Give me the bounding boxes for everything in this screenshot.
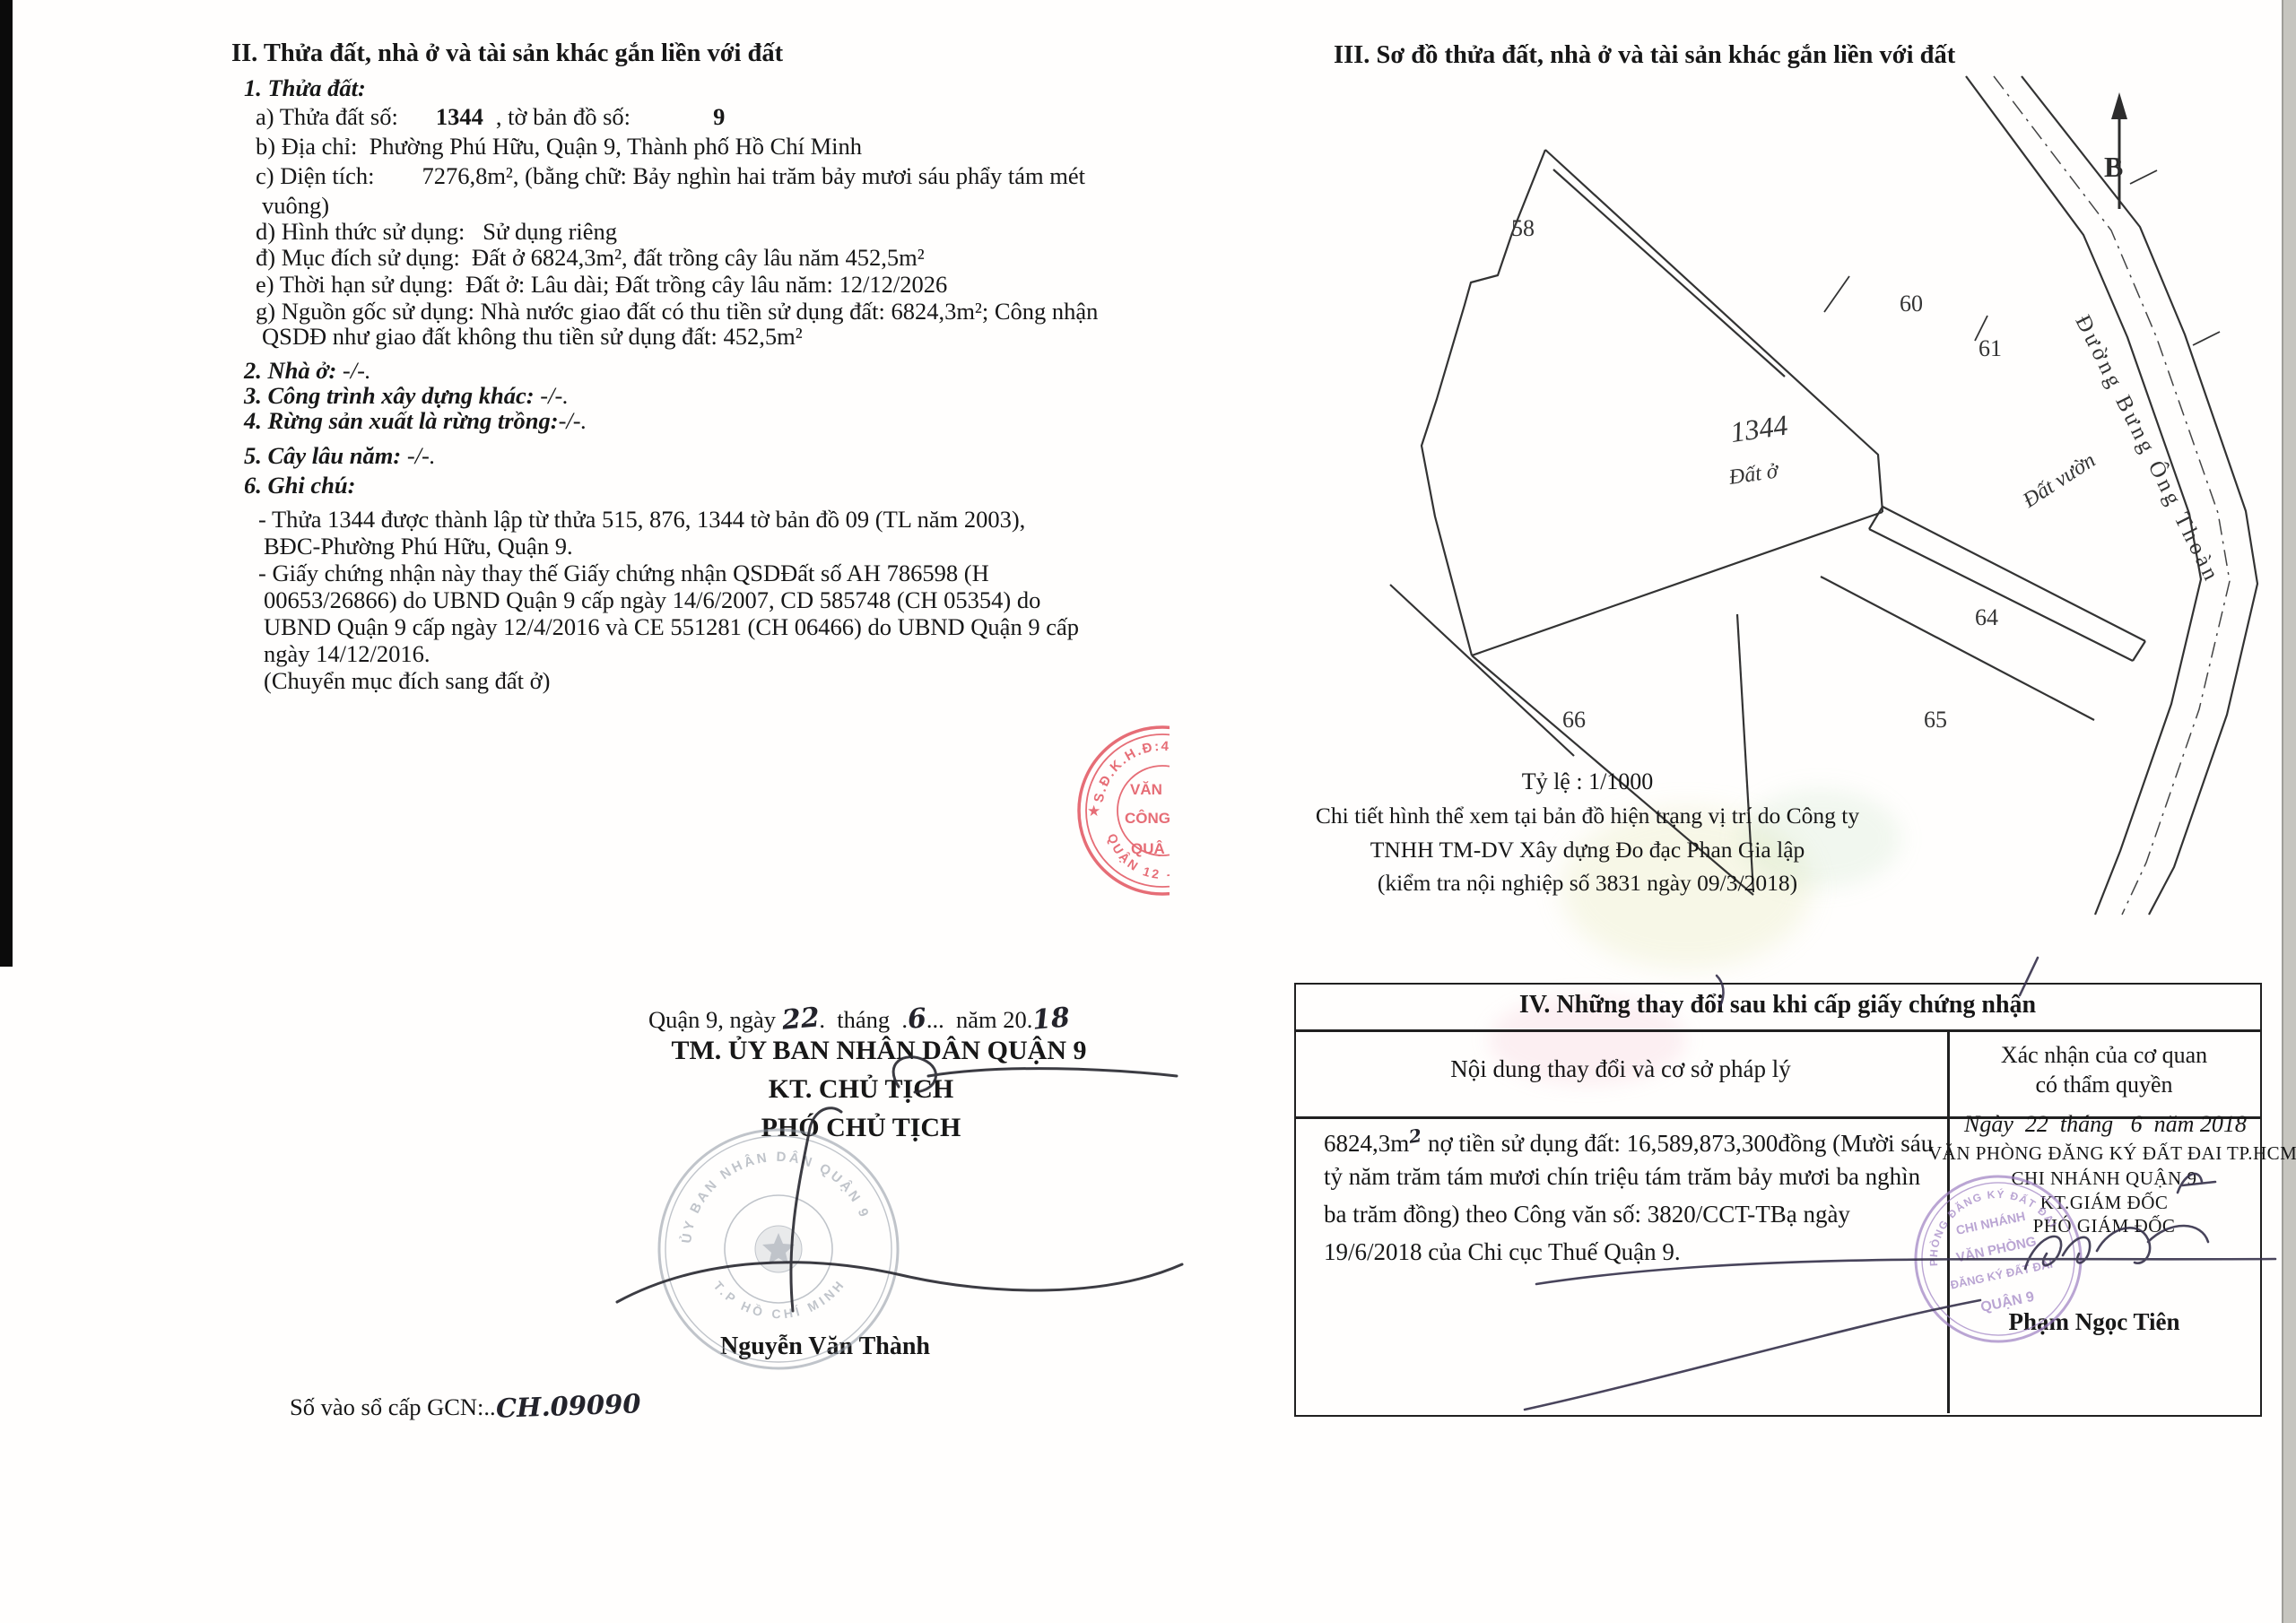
- map-caption-3: (kiểm tra nội nghiệp số 3831 ngày 09/3/2…: [1291, 871, 1883, 896]
- svg-text:Đường Bưng Ông Thoàn: Đường Bưng Ông Thoàn: [2070, 311, 2224, 587]
- purple-stamp-line4: QUẬN 9: [1979, 1288, 2036, 1315]
- north-arrow-icon: B: [2104, 92, 2127, 209]
- section4-heading: IV. Những thay đổi sau khi cấp giấy chứn…: [1294, 992, 2261, 1020]
- parcel-1344-south-boundary: [1472, 512, 1883, 655]
- parcel-1344-use-label: Đất ở: [1726, 459, 1780, 490]
- scan-edge-left: [0, 0, 13, 967]
- field-dien-tich-cont: vuông): [262, 193, 329, 219]
- table-row-divider-1: [1294, 1029, 2261, 1032]
- change-body-line4: 19/6/2018 của Chi cục Thuế Quận 9.: [1324, 1239, 1681, 1266]
- survey-ticks: [1824, 170, 2220, 345]
- svg-text:T.P HỒ CHÍ MINH: T.P HỒ CHÍ MINH: [711, 1276, 848, 1321]
- purple-stamp-line2: VĂN PHÒNG: [1954, 1233, 2038, 1265]
- handwritten-sup2: 2: [1408, 1125, 1423, 1147]
- handwritten-book-number: CH.09090: [495, 1390, 640, 1424]
- field-hinh-thuc: d) Hình thức sử dụng: Sử dụng riêng: [256, 219, 617, 245]
- item-ghi-chu: 6. Ghi chú:: [244, 473, 355, 499]
- field-nguon-goc-cont: QSDĐ như giao đất không thu tiền sử dụng…: [262, 324, 803, 350]
- note-line: UBND Quận 9 cấp ngày 12/4/2016 và CE 551…: [264, 614, 1079, 640]
- field-muc-dich: đ) Mục đích sử dụng: Đất ở 6824,3m², đất…: [256, 245, 925, 271]
- parcel-64-label: 64: [1975, 604, 1998, 630]
- field-dia-chi: b) Địa chỉ: Phường Phú Hữu, Quận 9, Thàn…: [256, 134, 862, 160]
- signing-date: Quận 9, ngày 22. tháng .6... năm 20.18: [648, 1004, 1070, 1034]
- note-line: ngày 14/12/2016.: [264, 641, 430, 667]
- item-rung-san-xuat: 4. Rừng sản xuất là rừng trồng:-/-.: [244, 408, 587, 434]
- field-dien-tich: c) Diện tích: 7276,8m², (bằng chữ: Bảy n…: [256, 163, 1085, 189]
- parcel-65-label: 65: [1924, 707, 1947, 733]
- section3-heading: III. Sơ đồ thửa đất, nhà ở và tài sản kh…: [1334, 41, 1955, 69]
- parcel-61-label: 61: [1979, 335, 2002, 361]
- parcel-64-south-line: [1821, 577, 2094, 720]
- note-line: 00653/26866) do UBND Quận 9 cấp ngày 14/…: [264, 587, 1040, 613]
- note-line: - Thửa 1344 được thành lập từ thửa 515, …: [258, 507, 1025, 533]
- parcel-number-value: 1344: [436, 103, 483, 130]
- gray-official-stamp: ỦY BAN NHÂN DÂN QUẬN 9 T.P HỒ CHÍ MINH: [644, 1115, 913, 1384]
- map-caption-1: Chi tiết hình thể xem tại bản đồ hiện tr…: [1291, 803, 1883, 829]
- field-nguon-goc: g) Nguồn gốc sử dụng: Nhà nước giao đất …: [256, 299, 1098, 325]
- north-label: B: [2104, 151, 2123, 183]
- purple-registry-stamp: PHÒNG ĐĂNG KÝ ĐẤT ĐAI CHI NHÁNH VĂN PHÒN…: [1909, 1171, 2088, 1350]
- red-stamp-line1: VĂN: [1130, 781, 1162, 798]
- field-thoi-han: e) Thời hạn sử dụng: Đất ở: Lâu dài; Đất…: [256, 272, 947, 298]
- committee-title: TM. ỦY BAN NHÂN DÂN QUẬN 9: [628, 1036, 1130, 1065]
- item-cong-trinh: 3. Công trình xây dựng khác: -/-.: [244, 383, 569, 409]
- red-stamp-star-icon: ★: [1087, 803, 1100, 820]
- confirm-date: Ngày 22 tháng 6 năm 2018: [1951, 1112, 2260, 1138]
- field-thua-dat-so: a) Thửa đất số:1344, tờ bản đồ số:9: [256, 104, 725, 130]
- parcel-1344-label: 1344: [1728, 408, 1789, 448]
- purple-stamp-line1: CHI NHÁNH: [1954, 1209, 2026, 1237]
- handwritten-year: 18: [1031, 1002, 1071, 1036]
- red-stamp-line2: CÔNG: [1125, 810, 1170, 827]
- handwritten-month: 6: [907, 1003, 928, 1035]
- item-thua-dat: 1. Thửa đất:: [244, 75, 366, 101]
- handwritten-day: 22: [780, 1002, 820, 1036]
- section2-heading: II. Thửa đất, nhà ở và tài sản khác gắn …: [231, 39, 783, 67]
- item-nha-o: 2. Nhà ở: -/-.: [244, 358, 371, 384]
- red-stamp-line3: QUẬ: [1131, 840, 1165, 857]
- map-caption-2: TNHH TM-DV Xây dựng Đo đạc Phan Gia lập: [1291, 838, 1883, 863]
- kt-chu-tich: KT. CHỦ TỊCH: [628, 1074, 1094, 1104]
- col-header-content: Nội dung thay đổi và cơ sở pháp lý: [1294, 1056, 1947, 1083]
- parcel-66-label: 66: [1562, 707, 1586, 733]
- parcel-60-label: 60: [1900, 291, 1923, 317]
- confirm-org-1: VĂN PHÒNG ĐĂNG KÝ ĐẤT ĐAI TP.HCM: [1928, 1143, 2287, 1164]
- book-number: Số vào sổ cấp GCN:..CH.09090: [290, 1393, 640, 1421]
- note-line: (Chuyển mục đích sang đất ở): [264, 668, 550, 694]
- parcel-1344-east-boundary: [1545, 150, 1883, 512]
- gray-stamp-arc-bottom: T.P HỒ CHÍ MINH: [711, 1276, 848, 1321]
- parcel-58-label: 58: [1511, 215, 1535, 241]
- map-scale: Tỷ lệ : 1/1000: [1318, 769, 1857, 795]
- red-stamp: S.Đ.K.H.Đ:410 QUẬN 12 - ★ VĂN CÔNG QUẬ: [1074, 721, 1170, 900]
- parcel-1344-inner-sliver: [1553, 169, 1785, 377]
- note-line: BĐC-Phường Phú Hữu, Quận 9.: [264, 534, 573, 560]
- col-header-confirm-1: Xác nhận của cơ quan: [1947, 1043, 2261, 1069]
- change-body-line2: tỷ năm trăm tám mươi chín triệu tám trăm…: [1324, 1164, 1920, 1191]
- garden-label: Đất vườn: [2018, 448, 2100, 513]
- map-sheet-value: 9: [713, 103, 725, 130]
- parcel-64-strip: [1869, 507, 2145, 661]
- road-name-label: Đường Bưng Ông Thoàn: [2070, 311, 2224, 587]
- certificate-page: II. Thửa đất, nhà ở và tài sản khác gắn …: [0, 0, 2296, 1623]
- change-body-line3: ba trăm đồng) theo Công văn số: 3820/CCT…: [1324, 1202, 1850, 1228]
- boundary-line-left: [1390, 585, 1574, 756]
- item-cay-lau-nam: 5. Cây lâu năm: -/-.: [244, 443, 435, 469]
- note-line: - Giấy chứng nhận này thay thế Giấy chứn…: [258, 560, 989, 586]
- change-body-line1: 6824,3m2 nợ tiền sử dụng đất: 16,589,873…: [1324, 1126, 1933, 1158]
- col-header-confirm-2: có thẩm quyền: [1947, 1072, 2261, 1098]
